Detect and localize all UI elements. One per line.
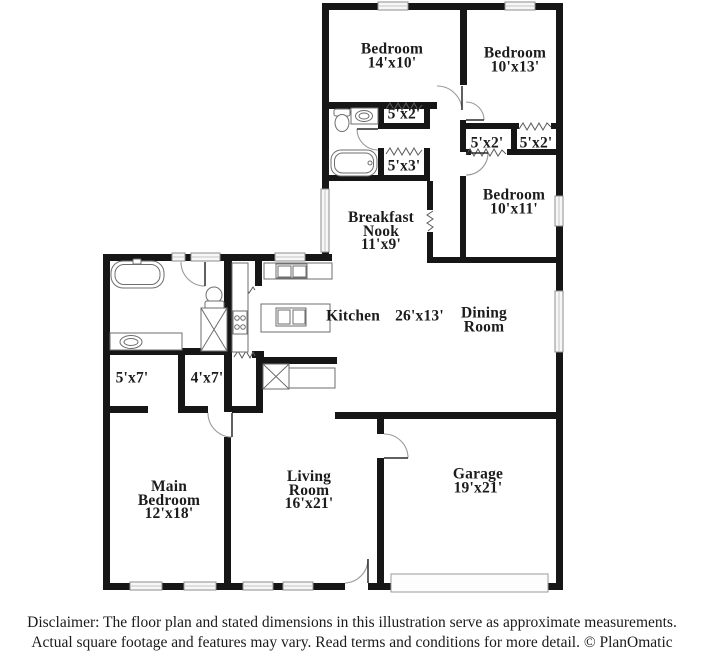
toilet-fixture xyxy=(334,109,350,132)
kitchen-island xyxy=(261,304,330,332)
room-dims: 5'x3' xyxy=(388,159,421,173)
stove-fixture xyxy=(232,263,248,352)
fixtures xyxy=(110,108,378,389)
room-dims: 5'x2' xyxy=(471,136,504,150)
room-label-bedroom-top-right: Bedroom 10'x13' xyxy=(470,47,560,74)
room-label-main-bedroom: Main Bedroom 12'x18' xyxy=(127,480,211,521)
garage-door xyxy=(391,574,548,592)
room-name: Kitchen xyxy=(326,309,380,323)
room-dims: 5'x2' xyxy=(520,136,553,150)
shower-fixture xyxy=(201,308,227,351)
laundry-fixture xyxy=(263,364,335,389)
room-name: Breakfast Nook xyxy=(339,211,423,238)
disclaimer-line-1: Disclaimer: The floor plan and stated di… xyxy=(0,613,704,633)
disclaimer: Disclaimer: The floor plan and stated di… xyxy=(0,613,704,652)
room-label-bedroom-mid-right: Bedroom 10'x11' xyxy=(469,189,559,216)
room-label-closet-pair-right: 5'x2' xyxy=(520,136,553,150)
room-dims: 12'x18' xyxy=(127,507,211,521)
room-label-closet-5x7: 5'x7' xyxy=(116,371,149,385)
room-label-breakfast-nook: Breakfast Nook 11'x9' xyxy=(339,211,423,252)
disclaimer-line-2: Actual square footage and features may v… xyxy=(0,633,704,653)
room-label-closet-4x7: 4'x7' xyxy=(191,371,224,385)
room-dims: 10'x13' xyxy=(470,60,560,74)
room-dims: 5'x2' xyxy=(388,107,421,121)
room-label-bedroom-top-left: Bedroom 14'x10' xyxy=(347,43,437,70)
vanity-sink-fixture xyxy=(110,333,182,350)
room-dims: 11'x9' xyxy=(339,238,423,252)
bathtub-fixture xyxy=(331,150,377,176)
room-dims: 5'x7' xyxy=(116,371,149,385)
room-dims: 16'x21' xyxy=(277,497,341,511)
kitchen-counter xyxy=(264,263,332,279)
room-label-kitchen: Kitchen 26'x13' xyxy=(326,309,444,323)
room-name: Dining Room xyxy=(453,307,515,334)
room-dims: 14'x10' xyxy=(347,56,437,70)
main-toilet-fixture xyxy=(205,287,224,309)
room-dims: 26'x13' xyxy=(395,309,444,323)
room-dims: 10'x11' xyxy=(469,202,559,216)
room-label-living-room: Living Room 16'x21' xyxy=(277,470,341,511)
room-label-garage: Garage 19'x21' xyxy=(433,468,523,495)
room-label-closet-linen: 5'x3' xyxy=(388,159,421,173)
floor-plan: Bedroom 14'x10' Bedroom 10'x13' 5'x2' 5'… xyxy=(0,0,704,657)
sink-fixture xyxy=(351,108,378,124)
room-dims: 4'x7' xyxy=(191,371,224,385)
room-label-closet-hall-top: 5'x2' xyxy=(388,107,421,121)
room-dims: 19'x21' xyxy=(433,481,523,495)
room-label-dining-room: Dining Room xyxy=(453,307,515,334)
room-label-closet-pair-left: 5'x2' xyxy=(471,136,504,150)
room-name: Main Bedroom xyxy=(127,480,211,507)
floor-plan-drawing xyxy=(0,0,704,657)
room-name: Living Room xyxy=(277,470,341,497)
main-bathtub-fixture xyxy=(111,259,164,288)
